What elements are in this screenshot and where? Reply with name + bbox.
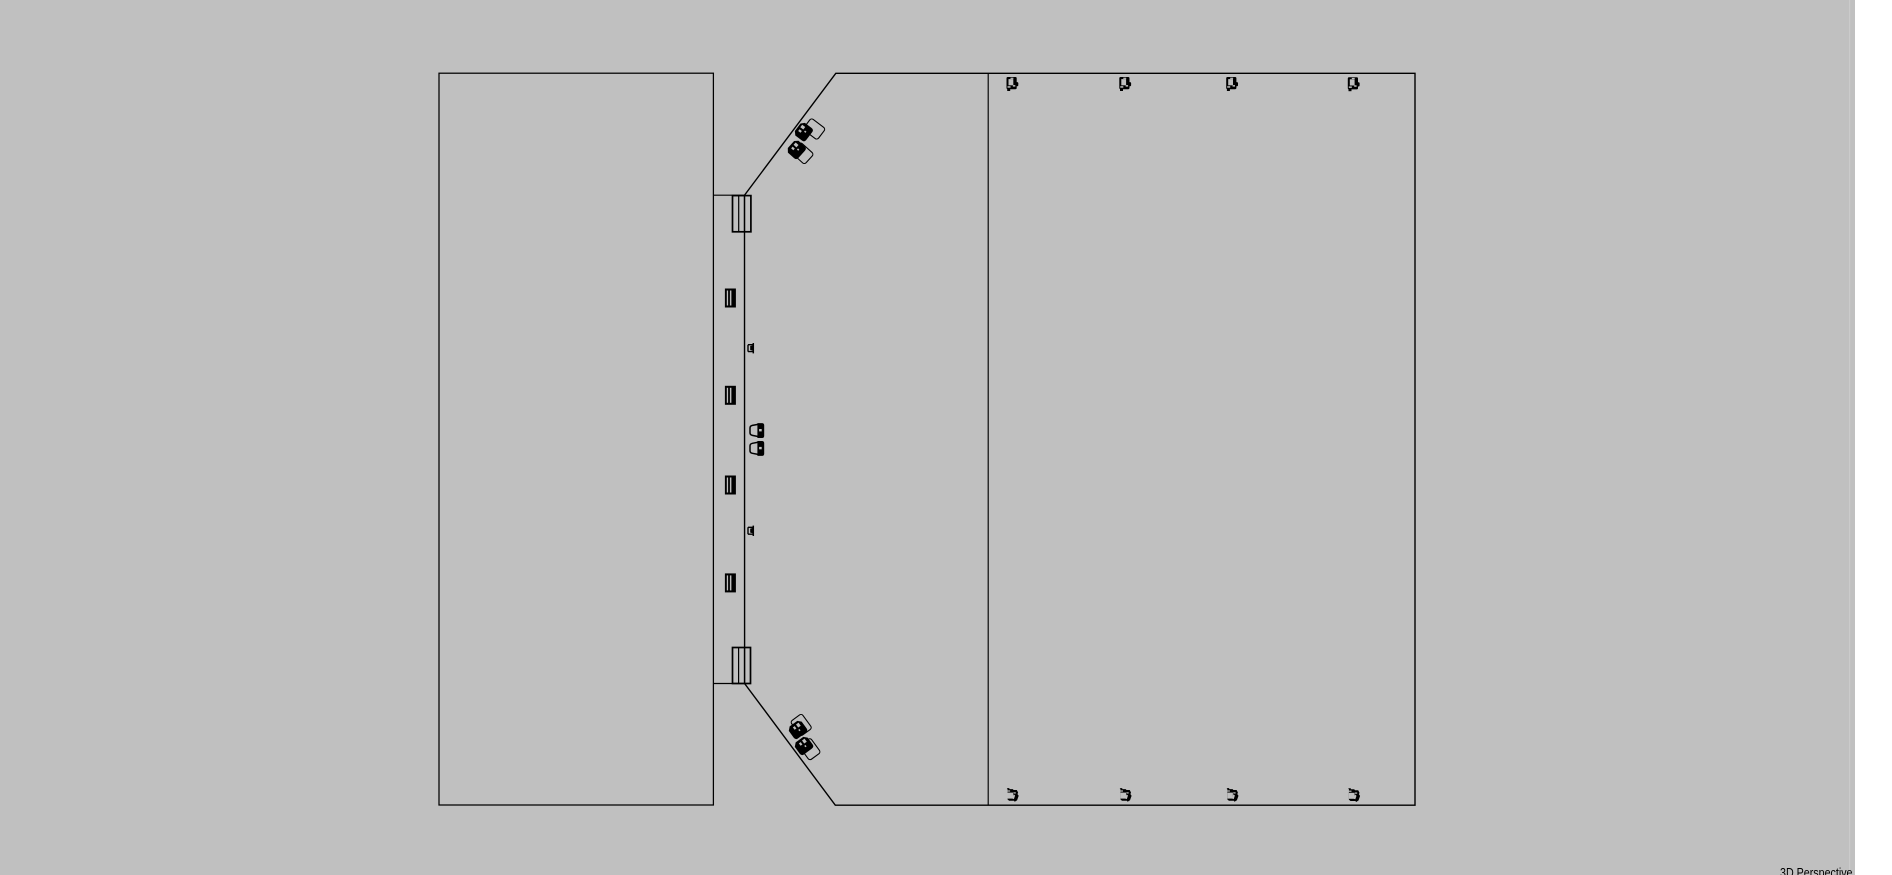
svg-text:3D Perspective: 3D Perspective [1780, 865, 1853, 875]
